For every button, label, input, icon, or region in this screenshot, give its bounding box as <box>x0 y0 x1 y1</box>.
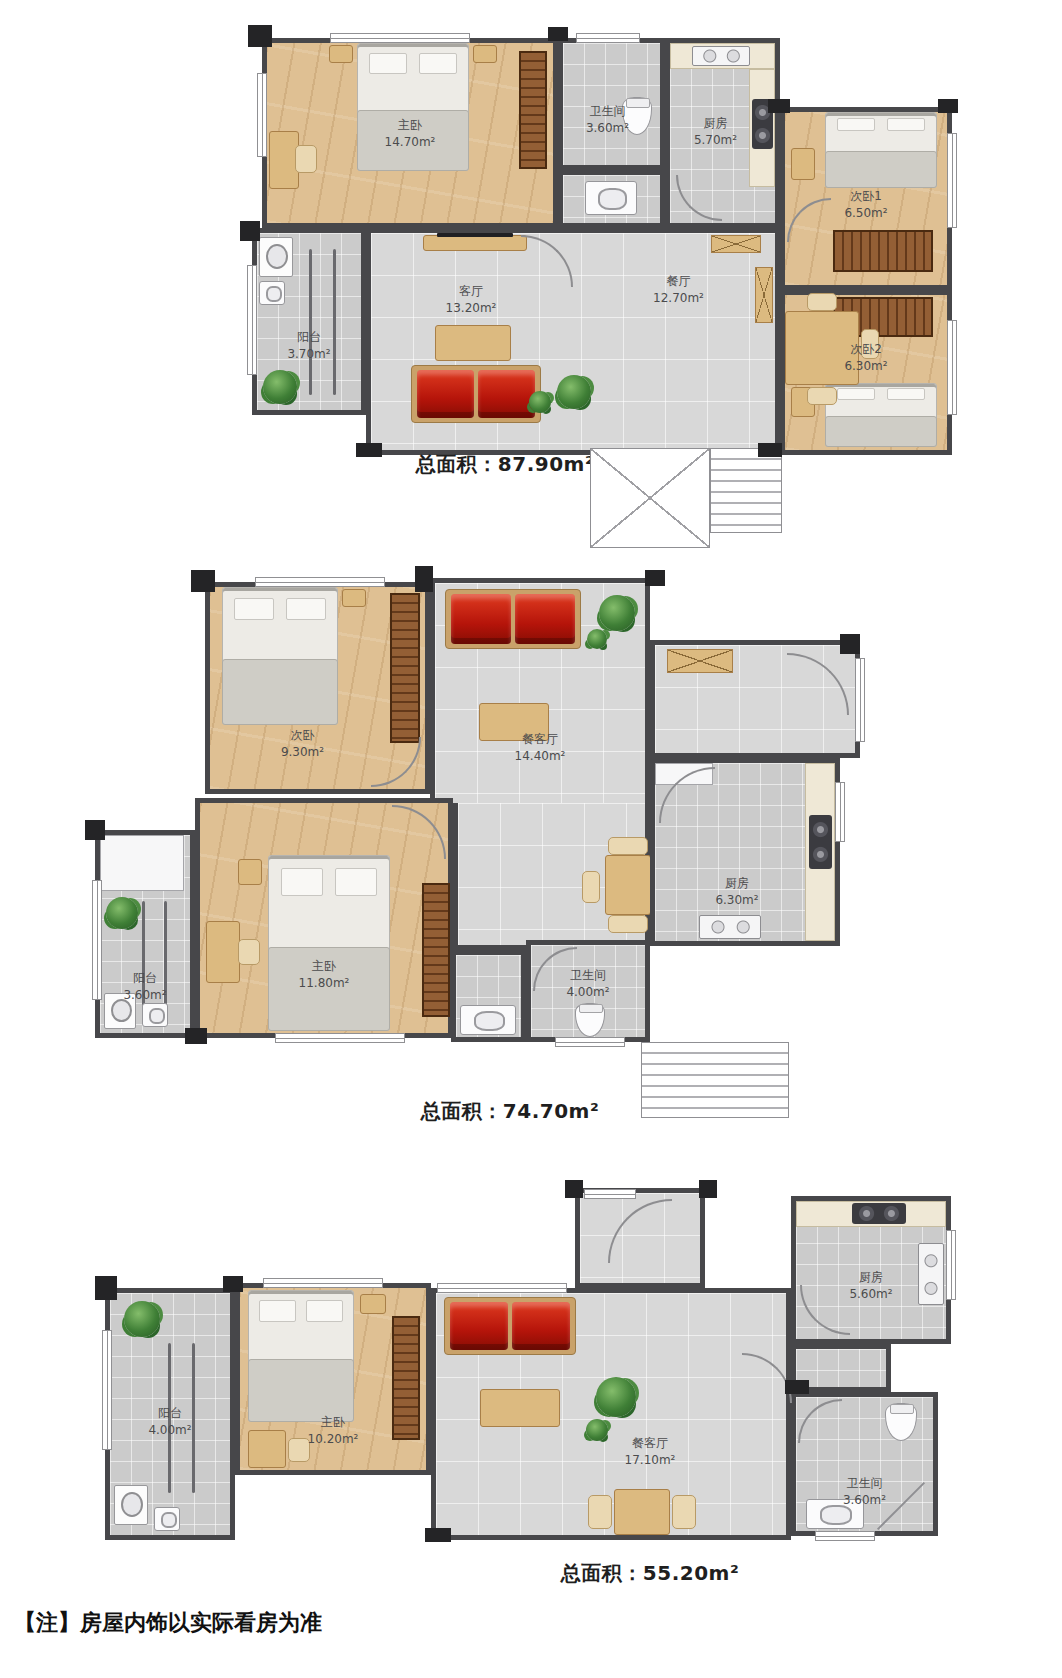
room-entry <box>575 1188 705 1288</box>
door-arc <box>533 947 577 991</box>
desk <box>248 1430 286 1468</box>
utility-sink <box>154 1507 180 1531</box>
plant <box>263 370 297 404</box>
wall-column <box>840 634 860 654</box>
room-name: 阳台 <box>100 970 190 987</box>
desk <box>206 921 240 983</box>
sofa <box>444 1297 576 1355</box>
double-bed <box>268 855 390 1031</box>
window <box>946 1230 956 1300</box>
cabinet <box>667 649 733 673</box>
coffee-table <box>435 325 511 361</box>
chair <box>582 871 600 903</box>
room-name: 卫生间 <box>796 1475 933 1492</box>
wall-column <box>356 443 382 457</box>
elevator-shaft <box>590 448 710 548</box>
chair <box>807 293 837 311</box>
bed-duvet <box>268 947 390 1031</box>
plant <box>587 629 607 649</box>
stove <box>852 1203 906 1224</box>
wall-column <box>240 221 260 241</box>
room-bathroom: 卫生间 4.00m² <box>526 940 650 1042</box>
kitchen-sink <box>692 46 750 66</box>
wall-column <box>699 1180 717 1198</box>
wardrobe <box>833 230 933 272</box>
window <box>330 33 470 43</box>
chair <box>238 939 260 965</box>
plant <box>557 375 591 409</box>
floor-plan-c: 阳台 4.00m² 主卧 10.20m² 餐客厅 17.10m² <box>95 1180 965 1558</box>
room-living-dining: 餐客厅 14.40m² <box>430 578 650 803</box>
wall-column <box>645 570 665 586</box>
door-arc <box>787 198 831 242</box>
room-living-dining: 餐客厅 17.10m² <box>431 1288 791 1540</box>
washing-machine <box>104 993 136 1029</box>
plant <box>124 1301 160 1337</box>
toilet <box>622 97 652 135</box>
wall-column <box>85 820 105 840</box>
wall-column <box>565 1180 583 1198</box>
room-master-bedroom: 主卧 11.80m² <box>195 798 453 1038</box>
toilet <box>575 1003 605 1037</box>
wall-column <box>768 99 790 113</box>
door-arc <box>742 1353 792 1403</box>
sofa-cushion <box>478 370 535 418</box>
vanity-sink <box>460 1005 516 1035</box>
room-bathroom: 卫生间 3.60m² <box>558 38 665 170</box>
sofa-cushion <box>512 1302 570 1350</box>
room-bathroom: 卫生间 3.60m² <box>791 1392 938 1536</box>
door-arc <box>800 1285 850 1335</box>
room-bedroom-2a: 次卧1 6.50m² <box>780 107 952 290</box>
door-arc <box>392 805 446 859</box>
window <box>555 1037 625 1047</box>
room-label: 客厅 13.20m² <box>371 283 571 318</box>
room-balcony: 阳台 4.00m² <box>105 1288 235 1540</box>
chair <box>588 1495 612 1529</box>
room-kitchen: 厨房 5.60m² <box>791 1196 951 1344</box>
bed-duvet <box>357 110 469 171</box>
stairwell <box>710 448 782 533</box>
total-area-plan-b: 总面积：74.70m² <box>360 1098 660 1125</box>
room-area: 12.70m² <box>581 290 776 307</box>
room-entry <box>650 640 860 758</box>
utility-sink <box>259 281 285 305</box>
single-bed <box>825 383 937 447</box>
bed-duvet <box>825 151 937 188</box>
wall-column <box>415 566 433 592</box>
kitchen-sink <box>699 915 761 939</box>
room-living-dining-lower <box>453 803 650 950</box>
door-arc <box>676 175 722 221</box>
room-label: 餐客厅 17.10m² <box>520 1435 780 1470</box>
window <box>247 265 257 375</box>
tv-console <box>423 235 527 251</box>
room-area: 13.20m² <box>371 300 571 317</box>
wall-column <box>191 570 215 592</box>
floor-plan-b: 次卧 9.30m² 餐客厅 14.40m² <box>85 530 965 1095</box>
wardrobe <box>390 593 420 743</box>
wall-column <box>223 1276 243 1292</box>
plant <box>586 1419 608 1441</box>
wardrobe <box>519 51 547 169</box>
window <box>947 320 957 415</box>
window <box>815 1531 875 1541</box>
door-arc <box>371 737 421 787</box>
window <box>255 577 385 587</box>
bed-duvet <box>222 659 338 725</box>
wall-column <box>938 99 958 113</box>
chair <box>608 837 648 855</box>
window <box>576 33 640 43</box>
balcony-rail <box>333 249 336 395</box>
window <box>835 782 845 842</box>
door-arc <box>798 1399 842 1443</box>
double-bed <box>222 587 338 725</box>
floor-plan-sheet: 主卧 14.70m² 卫生间 3.60m² 厨房 5.70m² <box>0 0 1062 1678</box>
plant <box>106 897 138 929</box>
chair <box>672 1495 696 1529</box>
shower-screen <box>877 1482 925 1530</box>
washing-machine <box>259 237 293 277</box>
nightstand <box>342 589 366 607</box>
room-hallway <box>558 170 665 228</box>
single-bed <box>825 112 937 188</box>
sofa-cushion <box>515 594 575 644</box>
sofa <box>411 365 541 423</box>
cabinet <box>755 267 773 323</box>
plant <box>596 1377 636 1417</box>
room-label: 餐厅 12.70m² <box>581 273 776 308</box>
wardrobe <box>422 883 450 1017</box>
wall-column <box>248 25 272 47</box>
total-area-plan-c: 总面积：55.20m² <box>500 1560 800 1587</box>
window <box>257 73 267 157</box>
dining-table <box>785 311 859 385</box>
bathtub <box>100 835 184 891</box>
coffee-table <box>480 1389 560 1427</box>
sofa-cushion <box>451 594 511 644</box>
balcony-rail <box>142 901 145 1013</box>
double-bed <box>357 43 469 171</box>
wall-column <box>548 27 568 41</box>
wardrobe <box>392 1316 420 1440</box>
double-bed <box>248 1290 354 1422</box>
utility-sink <box>142 1003 168 1027</box>
nightstand <box>791 148 815 180</box>
room-kitchen: 厨房 5.70m² <box>665 38 780 228</box>
nightstand <box>360 1294 386 1314</box>
balcony-rail <box>192 1343 195 1493</box>
room-master-bedroom: 主卧 10.20m² <box>235 1283 431 1475</box>
window <box>855 658 865 742</box>
stairwell <box>641 1042 789 1118</box>
toilet <box>885 1403 917 1441</box>
dining-table <box>605 855 651 915</box>
nightstand <box>238 859 262 885</box>
room-hallway <box>451 950 526 1042</box>
room-living-dining: 客厅 13.20m² 餐厅 12.70m² <box>366 228 780 455</box>
dining-table <box>614 1489 670 1535</box>
nightstand <box>329 45 353 63</box>
sofa-cushion <box>417 370 474 418</box>
bed-duvet <box>825 416 937 447</box>
wall-column <box>785 1380 809 1394</box>
entry-door-arc <box>608 1199 672 1263</box>
chair <box>861 329 879 359</box>
balcony-rail <box>309 249 312 395</box>
room-name: 餐厅 <box>581 273 776 290</box>
balcony-rail <box>164 901 167 1013</box>
window <box>437 1283 567 1293</box>
floor-plan-a: 主卧 14.70m² 卫生间 3.60m² 厨房 5.70m² <box>180 15 970 460</box>
room-balcony: 阳台 3.70m² <box>252 228 366 415</box>
plant <box>599 595 635 631</box>
wall-column <box>95 1276 117 1300</box>
window <box>263 1278 383 1288</box>
plant <box>529 391 551 413</box>
window <box>92 880 102 1000</box>
kitchen-sink <box>918 1243 944 1305</box>
nightstand <box>473 45 497 63</box>
footnote: 【注】房屋内饰以实际看房为准 <box>14 1608 322 1638</box>
vanity-sink <box>806 1499 864 1529</box>
washing-machine <box>114 1485 148 1525</box>
door-arc <box>521 235 573 287</box>
chair <box>608 915 648 933</box>
room-name: 餐客厅 <box>520 1435 780 1452</box>
cabinet <box>711 235 761 253</box>
window <box>947 133 957 228</box>
bed-duvet <box>248 1359 354 1422</box>
window <box>102 1330 112 1450</box>
chair <box>295 145 317 173</box>
sofa <box>445 589 581 649</box>
coffee-table <box>479 703 549 741</box>
room-master-bedroom: 主卧 14.70m² <box>262 38 558 228</box>
entry-door <box>584 1189 636 1199</box>
wall-column <box>758 443 782 457</box>
room-second-bedroom: 次卧 9.30m² <box>205 582 430 794</box>
room-area: 14.40m² <box>435 748 645 765</box>
wall-column <box>425 1528 451 1542</box>
chair <box>288 1438 310 1462</box>
room-kitchen: 厨房 6.30m² <box>650 758 840 946</box>
balcony-rail <box>168 1343 171 1493</box>
room-area: 17.10m² <box>520 1452 780 1469</box>
room-balcony: 阳台 3.60m² <box>95 830 195 1038</box>
vanity-sink <box>585 181 637 215</box>
tv <box>437 233 513 237</box>
entry-door-arc <box>787 653 849 715</box>
wall-column <box>185 1028 207 1044</box>
chair <box>807 387 837 405</box>
stove <box>809 815 832 869</box>
window <box>275 1033 405 1043</box>
sofa-cushion <box>450 1302 508 1350</box>
